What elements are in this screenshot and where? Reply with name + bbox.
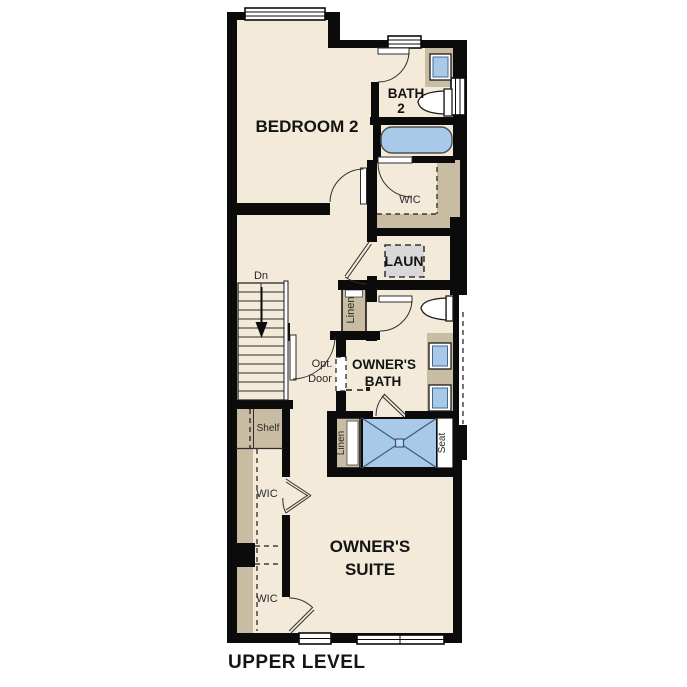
staircase — [238, 281, 288, 400]
label-wic-bath: WIC — [399, 194, 420, 206]
wall-segment — [453, 460, 462, 643]
label-bath2: BATH — [388, 86, 425, 101]
wall-segment — [230, 203, 330, 215]
wall-segment — [453, 295, 459, 332]
window-suite-small — [299, 633, 331, 644]
stair-railing — [284, 281, 288, 400]
wic-hanging-strip — [236, 448, 253, 633]
wall-segment — [367, 228, 467, 236]
structural-column — [233, 543, 255, 567]
wall-segment — [338, 280, 455, 290]
wall-segment — [336, 340, 346, 357]
wall-segment — [460, 160, 467, 217]
label-owners-bath-1: OWNER'S — [352, 357, 416, 372]
label-wic-upper: WIC — [256, 488, 277, 500]
bath2-tub — [381, 127, 452, 153]
label-opt-door-1: Opt. — [312, 358, 333, 370]
label-bedroom2: BEDROOM 2 — [256, 117, 359, 136]
floor-plan-upper-level: BEDROOM 2 BATH 2 WIC LAUN Linen Dn Opt. … — [0, 0, 687, 687]
wall-segment — [236, 400, 293, 409]
window-bath2-top — [388, 36, 421, 48]
plan-title: UPPER LEVEL — [228, 652, 365, 673]
wall-segment — [412, 156, 455, 163]
bath2-sink — [433, 57, 448, 77]
floor-plan-canvas: BEDROOM 2 BATH 2 WIC LAUN Linen Dn Opt. … — [0, 0, 687, 687]
wall-segment — [453, 425, 467, 460]
linen-lower-shelf — [347, 421, 358, 465]
label-shelf: Shelf — [257, 423, 280, 434]
label-down: Dn — [254, 270, 268, 282]
window-bath2-right — [451, 78, 465, 115]
wall-segment — [370, 117, 455, 125]
wall-segment — [330, 331, 380, 340]
wall-segment — [327, 468, 455, 477]
wall-segment — [337, 411, 373, 418]
label-owners-suite-2: SUITE — [345, 560, 395, 579]
label-owners-bath-2: BATH — [365, 374, 402, 389]
window-suite-large — [357, 635, 444, 644]
label-linen-lower: Linen — [336, 431, 347, 455]
wall-segment — [367, 228, 377, 242]
wall-segment — [282, 407, 290, 477]
label-linen-upper: Linen — [345, 297, 357, 324]
label-owners-suite-1: OWNER'S — [330, 537, 411, 556]
window-bedroom2 — [245, 8, 325, 20]
label-opt-door-2: Door — [308, 373, 332, 385]
label-laundry: LAUN — [385, 253, 424, 269]
wall-segment — [282, 515, 290, 597]
label-seat: Seat — [437, 432, 448, 453]
wall-segment — [366, 281, 377, 302]
linen-upper-shelf — [346, 290, 363, 297]
owners-sink-2 — [433, 388, 448, 408]
owners-sink-1 — [433, 346, 448, 366]
wall-segment — [367, 160, 377, 228]
label-bath2-num: 2 — [397, 101, 405, 116]
exterior-notch — [458, 292, 472, 425]
wic-shelf-bottom-band — [377, 214, 460, 228]
wic-shelf-right-band — [437, 160, 460, 215]
owners-shower — [362, 418, 437, 468]
label-wic-lower: WIC — [256, 593, 277, 605]
